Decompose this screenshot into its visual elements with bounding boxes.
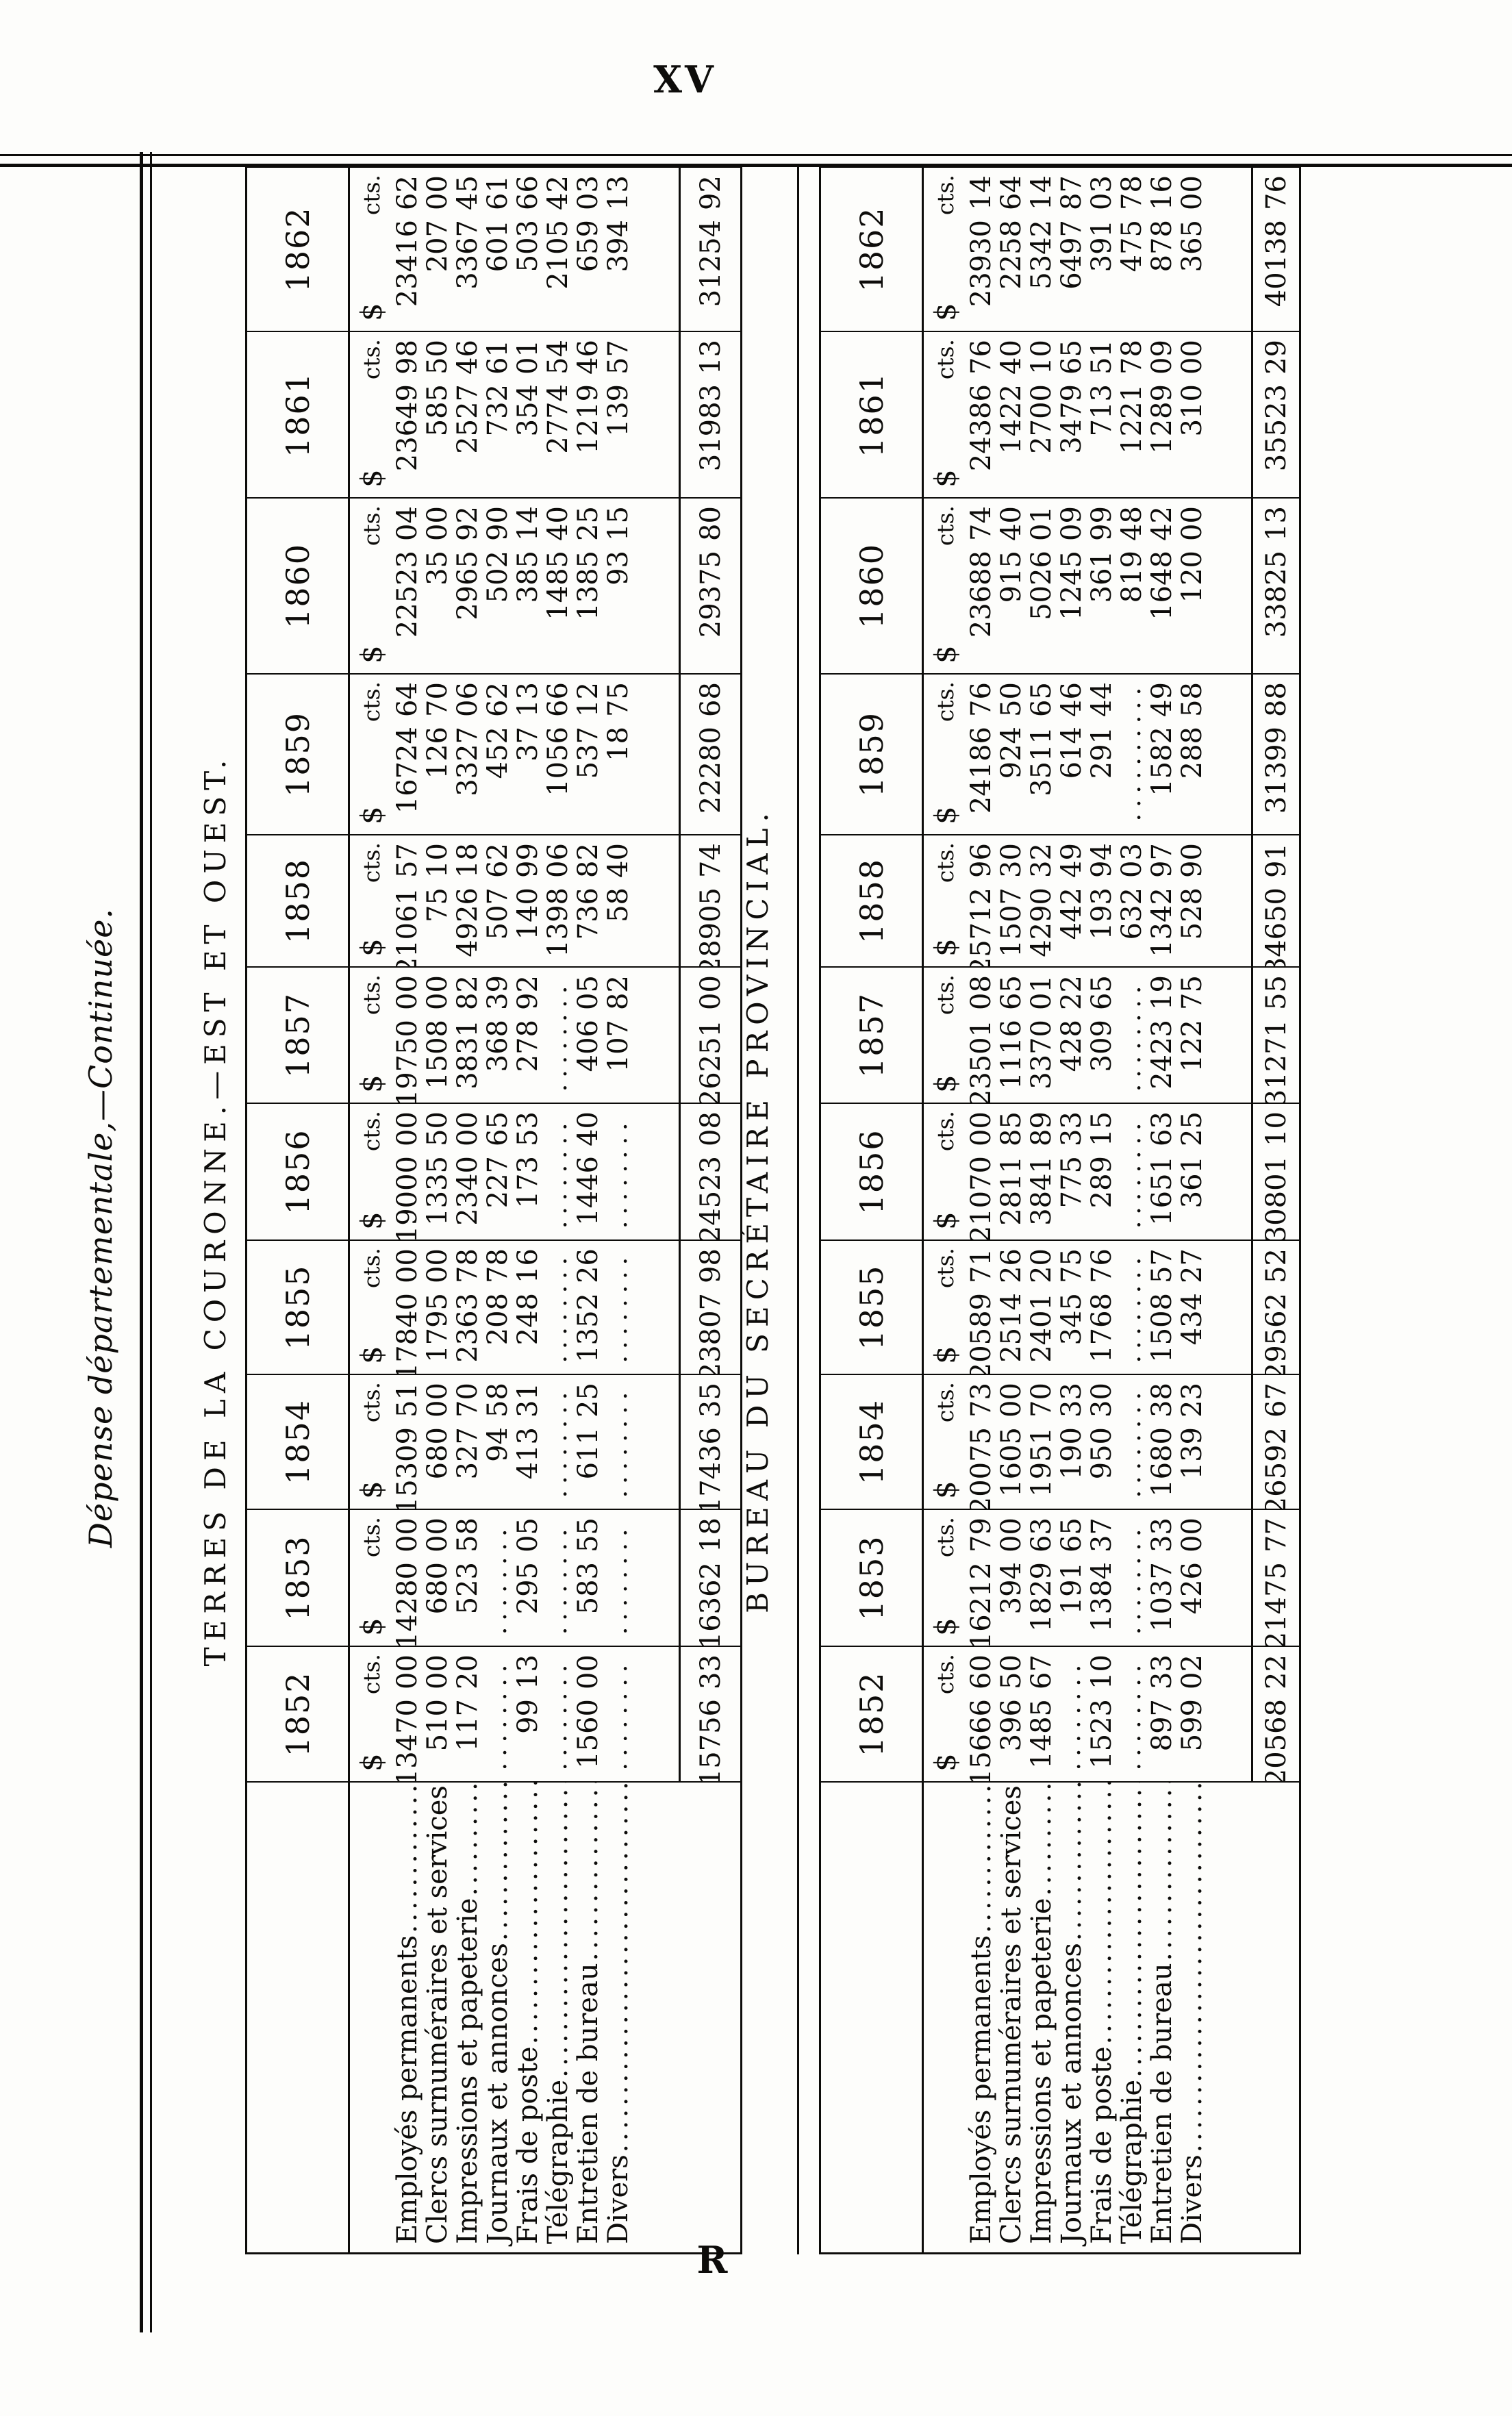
cents-figure: 70 <box>1026 1382 1057 1418</box>
blank-entry-dots <box>544 1521 572 1635</box>
filler-cell <box>1207 1241 1251 1375</box>
filler-cell <box>1207 332 1251 499</box>
year-header: 1853 <box>821 1510 924 1647</box>
dollars-figure: 15309 <box>392 1427 423 1510</box>
cents-abbreviation: cts. <box>358 681 385 722</box>
cents-figure: 08 <box>695 1111 727 1146</box>
filler-cell <box>633 332 679 499</box>
cents-figure: 45 <box>453 175 483 210</box>
dollar-sign: $ <box>355 1753 388 1772</box>
amount-cell: 12000 <box>1177 499 1207 675</box>
dollars-figure: 713 <box>1087 384 1117 436</box>
dollars-figure: 15756 <box>695 1699 727 1783</box>
amount-cell: 35401 <box>513 332 543 499</box>
dollars-figure: 24386 <box>966 384 996 471</box>
year-header: 1854 <box>821 1375 924 1510</box>
cents-figure: 64 <box>996 175 1026 210</box>
dollars-figure: 361 <box>1087 551 1117 603</box>
dollars-figure: 2258 <box>996 220 1026 290</box>
cents-abbreviation: cts. <box>358 974 385 1015</box>
cents-figure: 00 <box>392 974 423 1010</box>
cents-figure: 76 <box>1261 175 1292 210</box>
cents-figure: 65 <box>1087 974 1117 1010</box>
blank-amount-cell <box>603 1241 633 1375</box>
cents-figure: 89 <box>1026 1111 1057 1146</box>
cents-abbreviation: cts. <box>358 175 385 215</box>
blank-amount-cell <box>1117 1241 1147 1375</box>
dollars-figure: 442 <box>1057 888 1087 940</box>
dollars-figure: 289 <box>1087 1156 1117 1208</box>
dollars-figure: 227 <box>483 1156 513 1208</box>
cents-figure: 18 <box>695 1517 727 1552</box>
dollars-figure: 207 <box>423 220 453 272</box>
leader-dots <box>483 1783 513 1941</box>
filler-cell <box>633 1510 679 1647</box>
cents-figure: 97 <box>1147 842 1177 878</box>
leader-dots <box>1177 1783 1207 2152</box>
amount-cell: 36839 <box>483 968 513 1104</box>
cents-figure: 00 <box>423 1382 453 1418</box>
dollars-figure: 583 <box>573 1562 603 1614</box>
amount-cell: 150730 <box>996 835 1026 968</box>
amount-cell: 347965 <box>1057 332 1087 499</box>
expense-row-label: Frais de poste <box>1087 1783 1117 2252</box>
amount-cell: 65903 <box>573 168 603 332</box>
cents-figure: 49 <box>1057 842 1087 878</box>
dollars-figure: 3327 <box>453 727 483 796</box>
leader-dots <box>1026 1783 1057 1896</box>
dollars-figure: 22523 <box>392 551 423 638</box>
dollars-figure: 406 <box>573 1020 603 1072</box>
dollar-sign: $ <box>355 806 388 825</box>
amount-cell: 3500 <box>423 499 453 675</box>
amount-cell: 22765 <box>483 1104 513 1241</box>
amount-cell: 14099 <box>513 835 543 968</box>
filler-cell <box>633 1783 679 2252</box>
dollar-sign: $ <box>929 1753 962 1772</box>
filler-cell <box>1207 968 1251 1104</box>
cents-figure: 35 <box>695 1382 727 1418</box>
amount-cell: 28915 <box>1087 1104 1117 1241</box>
year-header: 1859 <box>821 675 924 835</box>
year-header: 1860 <box>821 499 924 675</box>
dollars-figure: 502 <box>483 551 513 603</box>
cents-figure: 18 <box>453 842 483 878</box>
expense-row-label: Impressions et papeterie <box>453 1783 483 2252</box>
filler-cell <box>633 675 679 835</box>
cents-figure: 39 <box>483 974 513 1010</box>
year-header: 1861 <box>821 332 924 499</box>
total-amount-cell: 3198313 <box>679 332 740 499</box>
cents-figure: 00 <box>392 1111 423 1146</box>
cents-figure: 03 <box>573 175 603 210</box>
dollars-figure: 4290 <box>1026 888 1057 957</box>
amount-cell: 165163 <box>1147 1104 1177 1241</box>
dollars-figure: 30801 <box>1261 1156 1292 1241</box>
dollars-figure: 1342 <box>1147 888 1177 957</box>
total-amount-cell: 3552329 <box>1251 332 1299 499</box>
amount-cell: 135226 <box>573 1241 603 1375</box>
dollars-figure: 1446 <box>573 1156 603 1226</box>
cents-abbreviation: cts. <box>932 339 959 379</box>
dollars-figure: 3479 <box>1057 384 1087 454</box>
amount-cell: 160500 <box>996 1375 1026 1510</box>
amount-cell: 81948 <box>1117 499 1147 675</box>
dollar-sign: $ <box>929 806 962 825</box>
amount-cell: 240120 <box>1026 1241 1057 1375</box>
cents-figure: 40 <box>996 339 1026 375</box>
filler-cell <box>1207 1647 1251 1783</box>
expense-row-label: Employés permanents <box>392 1783 423 2252</box>
cents-figure: 13 <box>1261 505 1292 541</box>
filler-cell <box>633 499 679 675</box>
dollars-figure: 117 <box>453 1699 483 1751</box>
cents-figure: 68 <box>695 681 727 717</box>
expense-row-label: Télégraphie <box>543 1783 573 2252</box>
cents-figure: 74 <box>966 505 996 541</box>
year-header: 1862 <box>821 168 924 332</box>
cents-figure: 90 <box>1177 842 1207 878</box>
amount-cell: 50762 <box>483 835 513 968</box>
row-label-text: Impressions et papeterie <box>1026 1898 1057 2244</box>
currency-header-cell: $cts. <box>924 1647 966 1783</box>
cents-figure: 65 <box>483 1111 513 1146</box>
total-amount-cell: 3127155 <box>1251 968 1299 1104</box>
year-header: 1862 <box>247 168 350 332</box>
leader-dots <box>1147 1783 1177 1961</box>
dollars-figure: 510 <box>423 1699 453 1751</box>
blank-amount-cell <box>543 1241 573 1375</box>
amount-cell: 9913 <box>513 1647 543 1783</box>
amount-cell: 28858 <box>1177 675 1207 835</box>
blank-entry-dots <box>544 1115 572 1229</box>
amount-cell: 9458 <box>483 1375 513 1510</box>
total-amount-cell: 3125492 <box>679 168 740 332</box>
amount-cell: 19394 <box>1087 835 1117 968</box>
cents-figure: 49 <box>1147 681 1177 717</box>
dollars-figure: 475 <box>1117 220 1147 272</box>
filler-cell <box>633 1104 679 1241</box>
dollars-figure: 23930 <box>966 220 996 307</box>
dollars-figure: 18 <box>603 727 633 762</box>
currency-header-cell: $cts. <box>924 968 966 1104</box>
dollars-figure: 2401 <box>1026 1293 1057 1363</box>
total-amount-cell: 3465091 <box>1251 835 1299 968</box>
dollars-figure: 507 <box>483 888 513 940</box>
cents-figure: 06 <box>453 681 483 717</box>
row-label-text: Journaux et annonces <box>483 1943 513 2244</box>
dollars-figure: 1219 <box>573 384 603 454</box>
dollar-sign: $ <box>929 1211 962 1230</box>
cents-abbreviation: cts. <box>932 1111 959 1151</box>
dollars-figure: 1485 <box>543 551 573 620</box>
currency-header-cell: $cts. <box>350 1647 392 1783</box>
amount-cell: 12275 <box>1177 968 1207 1104</box>
dollars-figure: 140 <box>513 888 543 940</box>
amount-cell: 1900000 <box>392 1104 423 1241</box>
cents-figure: 76 <box>1087 1248 1117 1283</box>
cents-figure: 40 <box>603 842 633 878</box>
expense-row-label: Frais de poste <box>513 1783 543 2252</box>
blank-entry-dots <box>605 1115 633 1229</box>
cents-figure: 92 <box>513 974 543 1010</box>
filler-cell <box>1207 675 1251 835</box>
cents-figure: 48 <box>1117 505 1147 541</box>
currency-header-cell: $cts. <box>924 835 966 968</box>
dollars-figure: 19750 <box>392 1020 423 1104</box>
amount-cell: 42600 <box>1177 1510 1207 1647</box>
rotated-landscape-content: Dépense départementale,—Continuée. TERRE… <box>0 0 1512 2416</box>
amount-cell: 1784000 <box>392 1241 423 1375</box>
dollars-figure: 2965 <box>453 551 483 620</box>
amount-cell: 53712 <box>573 675 603 835</box>
dollars-figure: 361 <box>1177 1156 1207 1208</box>
blank-amount-cell <box>1117 1510 1147 1647</box>
expense-row-label: Entretien de bureau <box>1147 1783 1177 2252</box>
amount-cell: 2393014 <box>966 168 996 332</box>
dollars-figure: 2340 <box>453 1156 483 1226</box>
amount-cell: 336745 <box>453 168 483 332</box>
cents-figure: 09 <box>1147 339 1177 375</box>
dollar-sign: $ <box>929 645 962 664</box>
cents-figure: 76 <box>966 339 996 375</box>
leader-dots <box>573 1783 603 1961</box>
dollars-figure: 394 <box>996 1562 1026 1614</box>
cents-figure: 14 <box>513 505 543 541</box>
currency-header-cell: $cts. <box>350 1375 392 1510</box>
expense-row-label: Impressions et papeterie <box>1026 1783 1057 2252</box>
dollars-figure: 24523 <box>695 1156 727 1241</box>
year-header: 1857 <box>247 968 350 1104</box>
amount-cell: 2571296 <box>966 835 996 968</box>
amount-cell: 51000 <box>423 1647 453 1783</box>
amount-cell: 148567 <box>1026 1647 1057 1783</box>
dollars-figure: 434 <box>1177 1293 1207 1345</box>
currency-header-cell: $cts. <box>350 968 392 1104</box>
expense-row-label: Divers <box>1177 1783 1207 2252</box>
row-label-text: Journaux et annonces <box>1057 1943 1087 2244</box>
outer-double-rule-top <box>140 152 152 2332</box>
amount-cell: 2368874 <box>966 499 996 675</box>
cents-figure: 00 <box>1177 505 1207 541</box>
amount-cell: 47578 <box>1117 168 1147 332</box>
blank-entry-dots <box>605 1658 633 1771</box>
amount-cell: 150800 <box>423 968 453 1104</box>
blank-entry-dots <box>1118 1115 1146 1229</box>
total-amount-cell: 3080110 <box>1251 1104 1299 1241</box>
dollars-figure: 528 <box>1177 888 1207 940</box>
cents-figure: 64 <box>392 681 423 717</box>
amount-cell: 91540 <box>996 499 1026 675</box>
cents-figure: 00 <box>1177 339 1207 375</box>
cents-figure: 20 <box>1026 1248 1057 1283</box>
cents-figure: 00 <box>392 1248 423 1283</box>
dollars-figure: 120 <box>1177 551 1207 603</box>
dollars-figure: 1385 <box>573 551 603 620</box>
expense-row-label: Télégraphie <box>1117 1783 1147 2252</box>
row-label-text: Frais de poste <box>513 2046 543 2244</box>
amount-cell: 332706 <box>453 675 483 835</box>
cents-figure: 00 <box>423 1517 453 1552</box>
dollars-figure: 20589 <box>966 1293 996 1375</box>
cents-figure: 00 <box>1177 1517 1207 1552</box>
cents-figure: 25 <box>573 505 603 541</box>
dollars-figure: 1648 <box>1147 551 1177 620</box>
amount-cell: 225864 <box>996 168 1026 332</box>
filler-cell <box>633 168 679 332</box>
cents-figure: 58 <box>453 1517 483 1552</box>
cents-figure: 12 <box>573 681 603 717</box>
amount-cell: 30965 <box>1087 968 1117 1104</box>
dollars-figure: 3831 <box>453 1020 483 1090</box>
dollars-figure: 680 <box>423 1562 453 1614</box>
cents-abbreviation: cts. <box>358 1111 385 1151</box>
cents-figure: 50 <box>996 1654 1026 1689</box>
cents-figure: 50 <box>423 1111 453 1146</box>
cents-figure: 99 <box>1087 505 1117 541</box>
dollars-figure: 1680 <box>1147 1427 1177 1497</box>
amount-cell: 92450 <box>996 675 1026 835</box>
dollars-figure: 139 <box>1177 1427 1207 1479</box>
dollars-figure: 3841 <box>1026 1156 1057 1226</box>
dollars-figure: 775 <box>1057 1156 1087 1208</box>
cents-figure: 03 <box>1087 175 1117 210</box>
cents-figure: 13 <box>513 1654 543 1689</box>
amount-cell: 39400 <box>996 1510 1026 1647</box>
leader-dots <box>996 1783 1026 1783</box>
dollars-figure: 1398 <box>543 888 573 957</box>
amount-cell: 32770 <box>453 1375 483 1510</box>
dollars-figure: 1384 <box>1087 1562 1117 1632</box>
blank-entry-dots <box>544 979 572 1092</box>
row-label-text: Employés permanents <box>966 1935 996 2244</box>
amount-cell: 182963 <box>1026 1510 1057 1647</box>
dollars-figure: 15666 <box>966 1699 996 1783</box>
currency-header-cell: $cts. <box>350 1241 392 1375</box>
blank-entry-dots <box>605 1386 633 1498</box>
cents-figure: 77 <box>1261 1517 1292 1552</box>
dollars-figure: 1582 <box>1147 727 1177 796</box>
amount-cell: 111665 <box>996 968 1026 1104</box>
cents-figure: 37 <box>1087 1517 1117 1552</box>
cents-figure: 63 <box>1026 1517 1057 1552</box>
amount-cell: 337001 <box>1026 968 1057 1104</box>
dollars-figure: 736 <box>573 888 603 940</box>
cents-figure: 82 <box>603 974 633 1010</box>
dollars-figure: 368 <box>483 1020 513 1072</box>
cents-figure: 62 <box>392 175 423 210</box>
amount-cell: 2107000 <box>966 1104 996 1241</box>
total-amount-cell: 1575633 <box>679 1647 740 1783</box>
blank-amount-cell <box>543 968 573 1104</box>
cents-figure: 31 <box>513 1382 543 1418</box>
dollars-figure: 345 <box>1057 1293 1087 1345</box>
dollars-figure: 29562 <box>1261 1293 1292 1375</box>
cents-figure: 14 <box>1026 175 1057 210</box>
amount-cell: 242319 <box>1147 968 1177 1104</box>
row-label-text: Télégraphie <box>1117 2080 1147 2244</box>
dollars-figure: 31254 <box>695 220 727 307</box>
dollar-sign: $ <box>929 938 962 957</box>
dollars-figure: 2423 <box>1147 1020 1177 1090</box>
cents-figure: 51 <box>392 1382 423 1418</box>
dollars-figure: 99 <box>513 1699 543 1734</box>
amount-cell: 40605 <box>573 968 603 1104</box>
cents-figure: 00 <box>392 1517 423 1552</box>
blank-entry-dots <box>1118 1521 1146 1635</box>
blank-entry-dots <box>1058 1658 1086 1771</box>
dollars-figure: 599 <box>1177 1699 1207 1751</box>
total-amount-cell: 2956252 <box>1251 1241 1299 1375</box>
dollars-figure: 1795 <box>423 1293 453 1363</box>
blank-amount-cell <box>1117 1375 1147 1510</box>
label-column-header <box>247 1783 350 2252</box>
currency-header-cell: $cts. <box>350 675 392 835</box>
total-amount-cell: 4013876 <box>1251 168 1299 332</box>
dollars-figure: 309 <box>1087 1020 1117 1072</box>
amount-cell: 195170 <box>1026 1375 1057 1510</box>
cents-figure: 13 <box>603 175 633 210</box>
dollars-figure: 428 <box>1057 1020 1087 1072</box>
dollar-sign: $ <box>355 1074 388 1093</box>
cents-figure: 00 <box>453 1111 483 1146</box>
amount-cell: 277454 <box>543 332 573 499</box>
amount-cell: 133550 <box>423 1104 453 1241</box>
total-amount-cell: 1636218 <box>679 1510 740 1647</box>
total-amount-cell: 2380798 <box>679 1241 740 1375</box>
year-header: 1855 <box>821 1241 924 1375</box>
dollars-figure: 396 <box>996 1699 1026 1751</box>
dollars-figure: 2527 <box>453 384 483 454</box>
cents-figure: 76 <box>966 681 996 717</box>
total-amount-cell: 2625100 <box>679 968 740 1104</box>
blank-entry-dots <box>1118 979 1146 1092</box>
dollars-figure: 537 <box>573 727 603 779</box>
amount-cell: 44249 <box>1057 835 1087 968</box>
dollars-figure: 33825 <box>1261 551 1292 638</box>
amount-cell: 19165 <box>1057 1510 1087 1647</box>
amount-cell: 1347000 <box>392 1647 423 1783</box>
amount-cell: 34575 <box>1057 1241 1087 1375</box>
dollars-figure: 1508 <box>423 1020 453 1090</box>
dollars-figure: 21070 <box>966 1156 996 1241</box>
amount-cell: 2058971 <box>966 1241 996 1375</box>
cents-figure: 10 <box>1261 1111 1292 1146</box>
dollars-figure: 611 <box>573 1427 603 1479</box>
cents-figure: 00 <box>573 1654 603 1689</box>
cents-figure: 00 <box>392 1654 423 1689</box>
amount-cell: 71351 <box>1087 332 1117 499</box>
dollars-figure: 2105 <box>543 220 573 290</box>
amount-cell: 61446 <box>1057 675 1087 835</box>
leader-dots <box>1057 1783 1087 1941</box>
dollars-figure: 291 <box>1087 727 1117 779</box>
cents-figure: 90 <box>483 505 513 541</box>
cents-figure: 55 <box>573 1517 603 1552</box>
cents-figure: 44 <box>1087 681 1117 717</box>
year-header: 1852 <box>247 1647 350 1783</box>
blank-amount-cell <box>543 1647 573 1783</box>
filler-cell <box>1207 499 1251 675</box>
dollars-figure: 1056 <box>543 727 573 796</box>
cents-figure: 60 <box>966 1654 996 1689</box>
amount-cell: 89733 <box>1147 1647 1177 1783</box>
amount-cell: 42822 <box>1057 968 1087 1104</box>
dollars-figure: 122 <box>1177 1020 1207 1072</box>
amount-cell: 534214 <box>1026 168 1057 332</box>
dollars-figure: 190 <box>1057 1427 1087 1479</box>
cents-figure: 50 <box>996 681 1026 717</box>
